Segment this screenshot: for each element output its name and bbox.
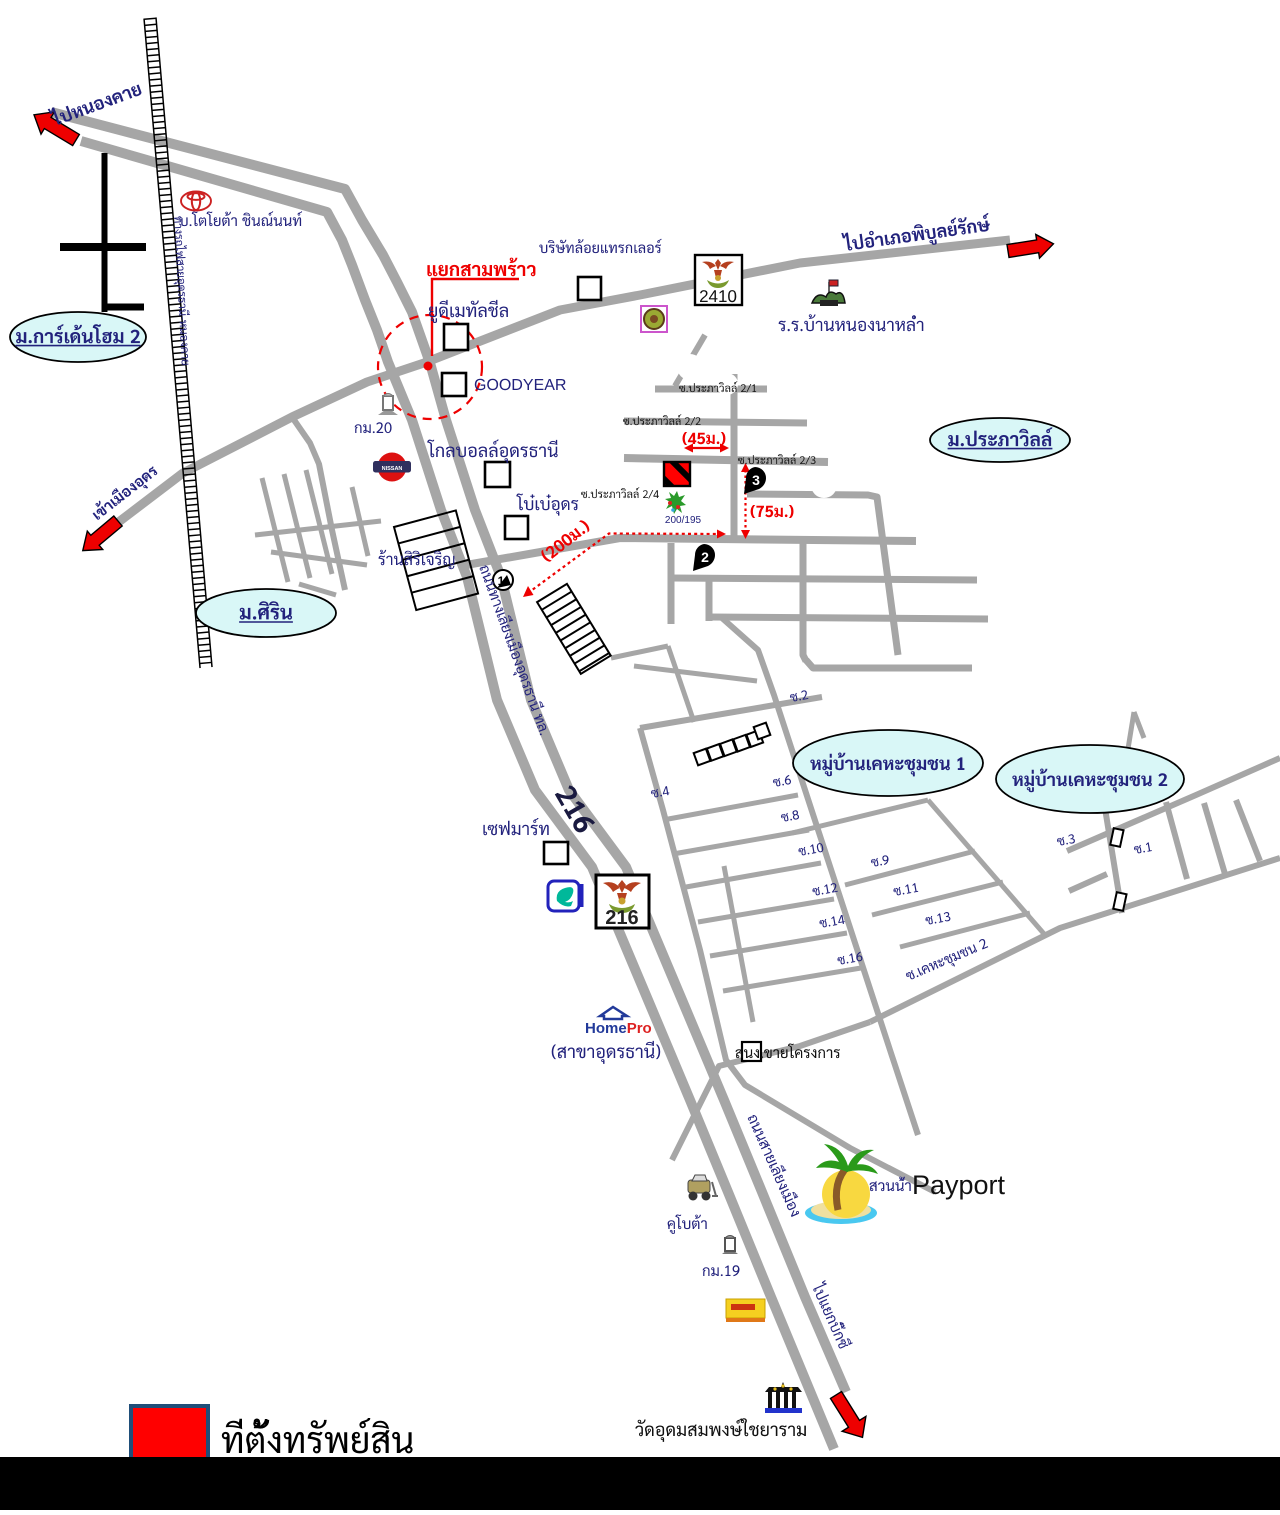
svg-text:NISSAN: NISSAN [382, 466, 403, 472]
svg-text:Payport: Payport [912, 1170, 1006, 1200]
svg-text:1: 1 [498, 574, 505, 588]
svg-text:3: 3 [752, 472, 760, 488]
svg-text:2: 2 [701, 549, 709, 565]
svg-text:200/195: 200/195 [665, 515, 702, 526]
svg-text:HomePro: HomePro [585, 1020, 652, 1037]
